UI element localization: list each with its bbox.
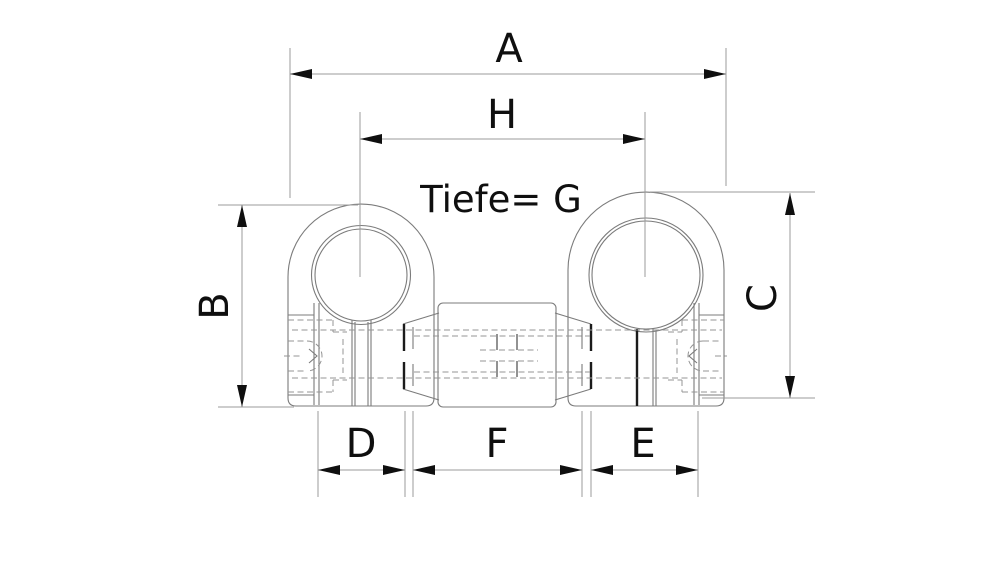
hidden-line-layer xyxy=(284,320,727,392)
dim-label-f: F xyxy=(485,421,508,467)
arrowhead xyxy=(785,376,795,398)
arrowhead xyxy=(560,465,582,475)
right-setscrew-tip xyxy=(689,349,697,363)
right-coupler-taper xyxy=(555,313,591,400)
arrowhead xyxy=(290,69,312,79)
dim-label-h: H xyxy=(487,92,517,138)
depth-note: Tiefe= G xyxy=(419,178,582,221)
dimension-text-layer: A H Tiefe= G B C D F E xyxy=(192,26,786,467)
left-boss-edge xyxy=(288,315,314,395)
joint-step-edge xyxy=(497,334,517,377)
dim-label-e: E xyxy=(630,421,655,467)
left-bore-circle-outer xyxy=(312,226,411,325)
dim-label-a: A xyxy=(495,26,523,72)
left-bore-circle-inner xyxy=(315,229,407,321)
right-boss-edge xyxy=(699,315,724,395)
right-bore-circle-inner xyxy=(592,221,700,329)
dim-label-d: D xyxy=(346,421,377,467)
arrowhead xyxy=(623,134,645,144)
arrowhead xyxy=(237,385,247,407)
arrowhead xyxy=(676,465,698,475)
right-setscrew-hidden xyxy=(677,339,727,373)
arrowhead xyxy=(413,465,435,475)
arrowhead xyxy=(785,193,795,215)
arrowhead xyxy=(360,134,382,144)
dim-label-c: C xyxy=(740,284,786,312)
arrowhead xyxy=(383,465,405,475)
dim-label-b: B xyxy=(192,292,238,319)
technical-drawing-canvas: A H Tiefe= G B C D F E xyxy=(0,0,1000,573)
left-setscrew-tip xyxy=(309,349,317,363)
outline-layer xyxy=(288,192,724,407)
right-setscrew-arc xyxy=(688,341,703,371)
arrowhead xyxy=(704,69,726,79)
joint-hidden-line xyxy=(480,350,538,361)
drawing-sheet: A H Tiefe= G B C D F E xyxy=(0,0,1000,573)
center-spacer-body xyxy=(438,303,556,407)
arrowhead xyxy=(318,465,340,475)
arrowhead xyxy=(237,205,247,227)
center-joint-layer xyxy=(497,334,517,377)
left-clamp-contour xyxy=(288,204,434,406)
arrowhead xyxy=(591,465,613,475)
right-bore-circle-outer xyxy=(589,218,703,332)
